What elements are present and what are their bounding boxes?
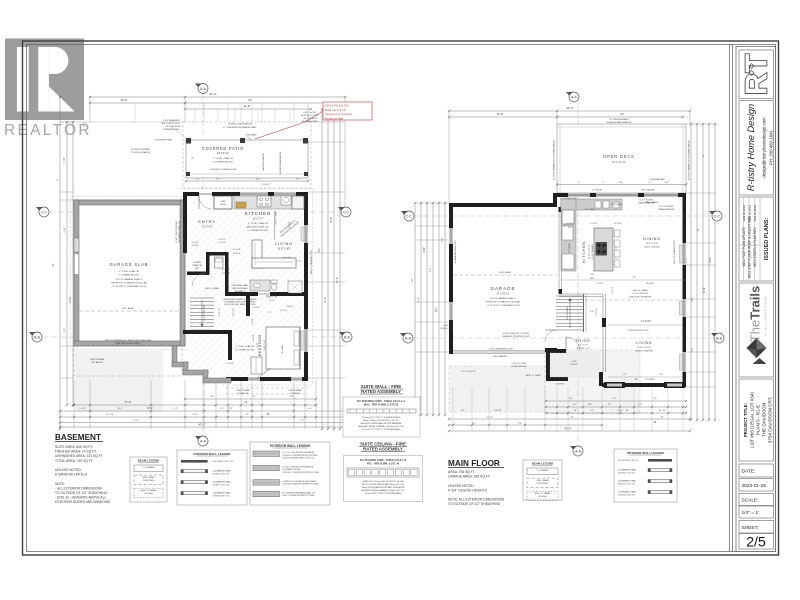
svg-text:24+ LOOKOUTS: 24+ LOOKOUTS: [461, 371, 476, 373]
svg-text:LINE OF BEAM: LINE OF BEAM: [90, 358, 104, 361]
svg-text:4-PLY EASEMENT: 4-PLY EASEMENT: [163, 119, 181, 122]
svg-text:8'-6": 8'-6": [588, 404, 593, 406]
svg-text:43'-6": 43'-6": [198, 423, 205, 427]
svg-text:4'-6": 4'-6": [430, 268, 432, 273]
svg-text:B-B: B-B: [716, 337, 722, 341]
svg-text:FRC - FRR 30 MIN. & STC 48: FRC - FRR 30 MIN. & STC 48: [367, 463, 400, 466]
svg-text:DATE:: DATE:: [742, 469, 756, 475]
svg-text:RATED ASSEMBLY: RATED ASSEMBLY: [363, 447, 403, 452]
svg-text:K.G BED: K.G BED: [282, 344, 284, 353]
svg-text:2023-01-25: 2023-01-25: [742, 483, 767, 489]
svg-text:14'-8 3/4": 14'-8 3/4": [646, 283, 654, 285]
svg-text:42'-6": 42'-6": [209, 92, 217, 96]
svg-text:5'-2": 5'-2": [196, 179, 200, 181]
svg-text:(PREMIUM WAS): (PREMIUM WAS): [512, 365, 527, 368]
svg-text:2x4 STUDS @ 16" O/C: 2x4 STUDS @ 16" O/C: [618, 460, 639, 462]
svg-text:2'-8 1/4": 2'-8 1/4": [219, 242, 226, 244]
svg-text:7'-6": 7'-6": [300, 420, 304, 422]
svg-text:7'4" X 7'2": 7'4" X 7'2": [578, 345, 588, 347]
svg-text:A-A: A-A: [571, 96, 577, 100]
svg-text:2'-6": 2'-6": [692, 348, 694, 353]
svg-text:UP 15 RISERS: UP 15 RISERS: [567, 306, 569, 320]
svg-text:4" SMOOTH FIN CLGS: 4" SMOOTH FIN CLGS: [628, 330, 650, 332]
svg-text:SUITE AREA: 600 SQ.FT.: SUITE AREA: 600 SQ.FT.: [55, 445, 93, 449]
svg-text:ENG. FL. BEAM: ENG. FL. BEAM: [275, 211, 278, 225]
svg-text:5'-0 1/4": 5'-0 1/4": [590, 223, 598, 225]
svg-text:2x4 BEARING WALL: 2x4 BEARING WALL: [213, 470, 233, 473]
svg-text:5'-2": 5'-2": [174, 408, 178, 410]
svg-text:NOTE:: NOTE:: [55, 482, 65, 486]
svg-text:W/D: W/D: [195, 268, 199, 270]
svg-text:9'-10 1/2": 9'-10 1/2": [219, 307, 221, 316]
svg-text:25': 25': [653, 421, 657, 424]
svg-text:STUDS @ 16" O/C: STUDS @ 16" O/C: [618, 484, 636, 486]
svg-text:SOLID 4 DAY DRY CLOSING: SOLID 4 DAY DRY CLOSING: [503, 332, 530, 335]
svg-text:LIVING: LIVING: [636, 341, 653, 345]
svg-text:MAIN FLOOR: MAIN FLOOR: [448, 459, 500, 468]
svg-text:- ENG. FL. HEADERS ABOVE ALL: - ENG. FL. HEADERS ABOVE ALL: [55, 496, 106, 500]
svg-text:PLAN 5 - R1-E: PLAN 5 - R1-E: [756, 405, 761, 435]
svg-text:(FLUSH): (FLUSH): [538, 496, 547, 498]
svg-text:7'-6": 7'-6": [659, 374, 663, 376]
svg-text:B-B: B-B: [344, 336, 350, 340]
svg-text:GLASS BOARD RAILING: GLASS BOARD RAILING: [606, 121, 631, 124]
svg-text:8'-6": 8'-6": [518, 423, 522, 425]
svg-text:GARAGE SLAB: GARAGE SLAB: [110, 262, 149, 267]
svg-text:16'-3": 16'-3": [147, 407, 153, 410]
svg-text:2x8 BEARING WALL: 2x8 BEARING WALL: [618, 491, 638, 494]
svg-text:PROJECT TITLE:: PROJECT TITLE:: [743, 403, 748, 437]
svg-text:TO OUTSIDE OF 1/2" SHEATHING: TO OUTSIDE OF 1/2" SHEATHING: [448, 502, 501, 506]
svg-text:4" CONC. SLAB ON: 4" CONC. SLAB ON: [213, 157, 233, 160]
svg-text:GARD. FL. BEAM: GARD. FL. BEAM: [525, 374, 541, 377]
svg-text:23': 23': [620, 112, 624, 116]
svg-text:7'-6": 7'-6": [612, 398, 617, 400]
svg-text:2/5: 2/5: [746, 534, 766, 550]
svg-text:8'-10 1/2": 8'-10 1/2": [262, 184, 270, 186]
svg-text:LINE OF FLOOR ABOVE: LINE OF FLOOR ABOVE: [629, 296, 652, 299]
svg-text:7'-6": 7'-6": [653, 398, 658, 400]
svg-text:RATED ASSEMBLY: RATED ASSEMBLY: [361, 389, 401, 394]
svg-text:LOT #65 (LEGAL LOT #34): LOT #65 (LEGAL LOT #34): [750, 392, 755, 448]
svg-text:8"x4" WDW: 8"x4" WDW: [585, 209, 595, 211]
svg-text:AND A POSITIVE LSL: AND A POSITIVE LSL: [247, 226, 269, 229]
svg-text:SHEET:: SHEET:: [742, 525, 759, 531]
svg-text:INTERIOR WALL LEGEND: INTERIOR WALL LEGEND: [627, 451, 665, 455]
svg-text:AREA: 765 SQ.FT.: AREA: 765 SQ.FT.: [448, 470, 476, 474]
svg-text:UNLESS NOTED:: UNLESS NOTED:: [448, 484, 475, 488]
svg-text:5'-1 1/2": 5'-1 1/2": [106, 414, 114, 416]
svg-text:2'-8": 2'-8": [220, 408, 224, 410]
svg-text:4" CONC. SLAB ON: 4" CONC. SLAB ON: [236, 345, 255, 348]
svg-text:6" COMPACTED FILL: 6" COMPACTED FILL: [118, 274, 140, 277]
svg-text:NO.1 PLOT PLAN UPDATE: NO.1 PLOT PLAN UPDATE: [742, 227, 746, 266]
svg-text:BUILT OUT TO 8"x8": BUILT OUT TO 8"x8": [161, 123, 180, 125]
svg-text:4" BUILD OUT: 4" BUILD OUT: [440, 328, 453, 330]
svg-text:8'-4 1/4": 8'-4 1/4": [227, 363, 234, 365]
svg-text:12'-4": 12'-4": [331, 217, 333, 223]
svg-text:REALTOR: REALTOR: [4, 122, 92, 139]
svg-text:KITCHEN: KITCHEN: [582, 241, 586, 263]
svg-text:(FLUSH): (FLUSH): [144, 493, 153, 495]
svg-text:SHOE: SHOE: [220, 204, 226, 206]
svg-text:TO OUTSIDE OF 1/2" SHEATHING: TO OUTSIDE OF 1/2" SHEATHING: [55, 491, 108, 495]
svg-text:W-10 1/2" R-7 3/4": W-10 1/2" R-7 3/4": [204, 305, 206, 321]
svg-text:2'-6": 2'-6": [210, 396, 215, 398]
svg-text:ENTRY: ENTRY: [198, 219, 215, 224]
svg-text:42" HIGH FRAMED QUICK BOARD RA: 42" HIGH FRAMED QUICK BOARD RAILING: [553, 139, 556, 180]
svg-text:LINE OF BEAM: LINE OF BEAM: [288, 389, 302, 392]
svg-text:ISSUED PLANS:: ISSUED PLANS:: [764, 218, 770, 261]
svg-text:SLOPED DRIVEWAY: SLOPED DRIVEWAY: [131, 148, 151, 151]
svg-text:FINISHED AREA: 14 SQ.FT.: FINISHED AREA: 14 SQ.FT.: [55, 450, 97, 454]
svg-text:design@rtistryhomedesign.com: design@rtistryhomedesign.com: [762, 117, 767, 178]
svg-text:®: ®: [82, 121, 87, 129]
svg-text:GARAGE: GARAGE: [491, 286, 516, 291]
svg-text:17'-6": 17'-6": [133, 420, 139, 422]
svg-text:9'-2": 9'-2": [472, 423, 476, 425]
svg-text:STUDS @ 16" O/C: STUDS @ 16" O/C: [618, 473, 636, 475]
svg-text:6.5 MIN. 26" CONCRETE (HOLD WA: 6.5 MIN. 26" CONCRETE (HOLD WALL): [282, 480, 317, 483]
svg-text:7'-11 3/4": 7'-11 3/4": [596, 308, 598, 317]
svg-text:C-C: C-C: [714, 215, 721, 219]
svg-text:8' 6 1/2" CONCRETE FOUNDATION: 8' 6 1/2" CONCRETE FOUNDATION: [282, 466, 313, 469]
svg-text:9'-10": 9'-10": [64, 227, 66, 233]
svg-text:RETAINING WALL: RETAINING WALL: [302, 120, 318, 123]
svg-text:13'-10" X 16'-5": 13'-10" X 16'-5": [589, 244, 591, 259]
svg-text:11'-6": 11'-6": [686, 257, 688, 263]
svg-text:R-tistry Home Design: R-tistry Home Design: [746, 104, 756, 191]
svg-text:STUDS @ 20" O/C: STUDS @ 20" O/C: [213, 496, 231, 498]
svg-text:42" HIGH FRAMED: 42" HIGH FRAMED: [609, 118, 629, 121]
svg-text:2' 8" LINTEL: 2' 8" LINTEL: [592, 190, 603, 192]
svg-text:(SEE SUITE WALL: (SEE SUITE WALL: [232, 287, 248, 290]
svg-text:5'-6 X 8' SLIDER: 5'-6 X 8' SLIDER: [659, 206, 674, 208]
svg-text:EXTERIOR WALL LEGEND: EXTERIOR WALL LEGEND: [270, 444, 311, 448]
svg-text:B-B: B-B: [34, 336, 40, 340]
svg-text:4'-6 1/4": 4'-6 1/4": [192, 245, 199, 247]
svg-text:ASSEMBLY): ASSEMBLY): [235, 290, 246, 293]
svg-text:(DROPPED): (DROPPED): [537, 483, 549, 485]
svg-text:5'-9 1/4": 5'-9 1/4": [222, 273, 230, 275]
svg-text:3'-2": 3'-2": [216, 179, 220, 181]
svg-text:2x6 BEARING WALL: 2x6 BEARING WALL: [213, 481, 233, 484]
svg-text:ENG. HEADER: ENG. HEADER: [641, 189, 655, 192]
svg-text:RE-ROUTED HVAC BEAMS BOOSTERS: RE-ROUTED HVAC BEAMS BOOSTERS: [224, 303, 256, 306]
svg-text:17'-4": 17'-4": [487, 417, 493, 419]
svg-text:JAN 30 2023: JAN 30 2023: [742, 204, 746, 221]
svg-text:OUT ABOVE: OUT ABOVE: [290, 392, 302, 395]
svg-text:JAN 25 2023: JAN 25 2023: [753, 204, 757, 221]
svg-text:27': 27': [410, 278, 414, 282]
svg-text:ENG. HEADER: ENG. HEADER: [493, 355, 507, 358]
svg-text:(DROPPED): (DROPPED): [143, 480, 155, 482]
svg-text:C-C: C-C: [343, 211, 350, 215]
svg-text:4'-8 1/4": 4'-8 1/4": [287, 306, 294, 308]
svg-text:42'-6": 42'-6": [566, 106, 574, 110]
svg-text:2x8 BEARING WALL: 2x8 BEARING WALL: [213, 492, 233, 495]
svg-text:C/W 2x4 FURRING WALL @ 24" O/S: C/W 2x4 FURRING WALL @ 24" O/S: [282, 457, 314, 460]
svg-text:6'-8": 6'-8": [619, 182, 623, 184]
svg-text:2x4 BEARING WALL: 2x4 BEARING WALL: [618, 469, 638, 472]
svg-text:BASEMENT: BASEMENT: [55, 433, 101, 442]
svg-text:NOTE: ALL EXTERIOR DIMENSIONS: NOTE: ALL EXTERIOR DIMENSIONS: [448, 498, 505, 502]
svg-text:8x8: 8x8: [634, 379, 637, 381]
svg-text:23' X 11'-11": 23' X 11'-11": [612, 161, 626, 164]
svg-text:9' THERMAL WALL: 9' THERMAL WALL: [649, 178, 665, 181]
svg-text:12.7mm (1/2") TYPE "X" GYPSUM: 12.7mm (1/2") TYPE "X" GYPSUM BOARD: [362, 428, 401, 431]
svg-text:THE DAVIDSON: THE DAVIDSON: [762, 403, 767, 437]
svg-text:BEAM LEGEND: BEAM LEGEND: [138, 459, 159, 463]
svg-text:UNFINISHED AREA: 131 SQ.FT.: UNFINISHED AREA: 131 SQ.FT.: [55, 454, 103, 458]
svg-text:23': 23': [248, 98, 252, 102]
svg-text:8" CONCRETE RETAINING WALL: 8" CONCRETE RETAINING WALL: [223, 126, 257, 129]
svg-text:1 1/2": 1 1/2": [192, 414, 197, 416]
svg-text:2x6 BEARING WALL (TYP.): 2x6 BEARING WALL (TYP.): [454, 240, 457, 264]
svg-text:COAT/: COAT/: [220, 200, 226, 203]
svg-text:WALL HEADED: WALL HEADED: [645, 201, 659, 204]
svg-text:18' 8-3/4" CLG: 18' 8-3/4" CLG: [576, 348, 590, 350]
svg-text:4" CONC. SLAB ON: 4" CONC. SLAB ON: [119, 270, 139, 273]
svg-text:ON CONCRETE: ON CONCRETE: [165, 126, 180, 128]
svg-text:4'-6": 4'-6": [296, 179, 300, 181]
svg-text:2 x LUMBER: 2 x LUMBER: [536, 470, 549, 472]
svg-text:12': 12': [244, 400, 248, 404]
svg-text:37'-8" LINTEL: 37'-8" LINTEL: [611, 204, 623, 206]
svg-text:8" CONCRETE RETAINING WALL ON: 8" CONCRETE RETAINING WALL ON: [282, 491, 315, 494]
svg-text:NO.3 STAIRS & PLAN REV.: NO.3 STAIRS & PLAN REV.: [753, 227, 757, 267]
svg-text:WEATHER STRIPPED DOOR: WEATHER STRIPPED DOOR: [503, 335, 531, 338]
svg-text:4-PLY 2x6 PSL*: 4-PLY 2x6 PSL*: [303, 112, 317, 114]
svg-text:ON 19"x8" CONCRETE STRIP FOOTI: ON 19"x8" CONCRETE STRIP FOOTING: [282, 455, 318, 457]
svg-text:2'-8 1/4": 2'-8 1/4": [253, 307, 260, 309]
svg-text:FROM TOP OF MAIN FLOOR SLAB: FROM TOP OF MAIN FLOOR SLAB: [111, 282, 147, 285]
svg-text:ENG.: ENG.: [444, 325, 449, 327]
svg-text:C-C: C-C: [41, 211, 48, 215]
svg-text:ENG. FL. BEAM: ENG. FL. BEAM: [633, 289, 648, 292]
svg-text:21'-8": 21'-8": [244, 104, 251, 108]
svg-text:4'-1": 4'-1": [573, 404, 577, 406]
svg-text:10'-1": 10'-1": [117, 408, 122, 410]
svg-text:13'-6": 13'-6": [423, 247, 426, 253]
svg-text:6'-8 1/4": 6'-8 1/4": [253, 334, 255, 341]
svg-text:4'-6": 4'-6": [568, 227, 572, 229]
svg-text:TOP OF GARAGE SLAB -3": TOP OF GARAGE SLAB -3": [115, 278, 143, 281]
svg-text:3'-0 1/4": 3'-0 1/4": [252, 318, 254, 325]
svg-text:STUDS @ 16" O/C: STUDS @ 16" O/C: [213, 485, 231, 487]
svg-text:16"x8" CONC FOOTING: 16"x8" CONC FOOTING: [176, 221, 178, 243]
svg-text:WSC - FRR 45 MIN. & STC 43: WSC - FRR 45 MIN. & STC 43: [364, 404, 399, 407]
svg-text:8" x 3'-0" CONCRETE FOUNDATION: 8" x 3'-0" CONCRETE FOUNDATION: [282, 451, 314, 454]
svg-text:14'-2": 14'-2": [255, 179, 260, 181]
svg-text:ENG. FL. HEADER (TYP.): ENG. FL. HEADER (TYP.): [310, 250, 313, 275]
svg-text:2'-2": 2'-2": [590, 410, 594, 412]
svg-text:FOYER: FOYER: [576, 339, 591, 343]
svg-text:KITCHEN: KITCHEN: [245, 211, 271, 216]
svg-text:17'-6": 17'-6": [125, 400, 132, 404]
svg-text:ON 8"x16" CONCRETE (STRIP FOOT: ON 8"x16" CONCRETE (STRIP FOOTING): [282, 472, 319, 474]
svg-text:2'-1": 2'-1": [268, 312, 272, 314]
svg-text:'14'-8 3/4": '14'-8 3/4": [641, 320, 652, 323]
svg-text:19'-6": 19'-6": [120, 98, 127, 102]
svg-text:4'-1": 4'-1": [569, 398, 574, 400]
svg-text:Retaining Wall: Retaining Wall: [325, 116, 343, 120]
svg-text:CRAWL IN: CRAWL IN: [192, 264, 202, 267]
svg-text:4'-4": 4'-4": [461, 410, 465, 412]
svg-text:5'-8 1/4": 5'-8 1/4": [233, 253, 241, 255]
svg-text:RT: RT: [739, 54, 774, 95]
svg-text:RESILIENT METAL CHANNEL @ 600m: RESILIENT METAL CHANNEL @ 600mm (16" O/C…: [358, 425, 404, 428]
svg-text:FIRE RATED WALL: FIRE RATED WALL: [232, 284, 249, 287]
svg-text:ENG. BEAM: ENG. BEAM: [537, 479, 549, 482]
svg-text:+2" SLOPE TO OVERHEAD DOOR: +2" SLOPE TO OVERHEAD DOOR: [112, 285, 147, 288]
svg-text:- ALL EXTERIOR DIMENSIONS: - ALL EXTERIOR DIMENSIONS: [55, 486, 103, 490]
svg-text:7'-6": 7'-6": [63, 157, 66, 162]
svg-text:89mm(R12) WHITE ABSORPTIVE MAT: 89mm(R12) WHITE ABSORPTIVE MATERIAL: [360, 422, 402, 425]
svg-text:SUBFLOOR: 15.5mm (5/8") PLYWOO: SUBFLOOR: 15.5mm (5/8") PLYWOOD OR OSB: [362, 481, 404, 483]
svg-text:FROM TOP OF MAIN FLOOR SLAB: FROM TOP OF MAIN FLOOR SLAB: [486, 301, 520, 304]
svg-text:5'-6 3/4": 5'-6 3/4": [289, 221, 291, 228]
svg-text:ENG. BEAM: ENG. BEAM: [499, 271, 510, 274]
svg-text:4" COMPACTED FILL: 4" COMPACTED FILL: [235, 349, 255, 352]
svg-text:1/4" = 1': 1/4" = 1': [742, 510, 760, 516]
svg-text:TRANSOM ABOVE: TRANSOM ABOVE: [658, 208, 675, 211]
svg-text:OUT ABOVE: OUT ABOVE: [91, 361, 103, 364]
svg-text:CONCRETE STAIR: CONCRETE STAIR: [154, 139, 172, 142]
svg-text:A-A: A-A: [200, 87, 206, 91]
svg-text:12.7mm (1/2") TYPE "X" GYPSUM: 12.7mm (1/2") TYPE "X" GYPSUM BOARD: [362, 416, 401, 419]
svg-text:STUDS @ 16" O/C: STUDS @ 16" O/C: [213, 474, 231, 476]
svg-text:8'-1 1/4": 8'-1 1/4": [233, 249, 241, 251]
svg-text:7'-6": 7'-6": [290, 396, 295, 398]
svg-text:ENG. FL. BEAM: ENG. FL. BEAM: [535, 492, 550, 495]
svg-text:27': 27': [51, 263, 55, 267]
svg-text:38mm x 89mm (2x4) STUDS @ 16": 38mm x 89mm (2x4) STUDS @ 16" O/C: [363, 420, 399, 422]
svg-text:ON 8"x16" CONCRETE (STRIP FOOT: ON 8"x16" CONCRETE (STRIP FOOTING): [282, 484, 319, 486]
svg-text:4'-6": 4'-6": [590, 274, 594, 276]
svg-text:(9'-3/4" CEILING): (9'-3/4" CEILING): [644, 247, 660, 249]
svg-text:NO.2 STEP FLOOR ROOF & HEIGHT: NO.2 STEP FLOOR ROOF & HEIGHT REV.: [748, 215, 752, 278]
svg-text:ENG. FL. BEAM: ENG. FL. BEAM: [141, 489, 156, 492]
svg-text:STUDS @ 20" O/C: STUDS @ 20" O/C: [618, 495, 636, 497]
svg-text:RETAINING WALL: RETAINING WALL: [163, 128, 181, 131]
svg-text:5'-8 1/4": 5'-8 1/4": [494, 410, 502, 412]
svg-text:9'-3/4" CEILING HEIGHTS: 9'-3/4" CEILING HEIGHTS: [448, 488, 488, 492]
svg-text:2x6 BEARING WALL ON: 2x6 BEARING WALL ON: [178, 220, 181, 243]
svg-text:(9' CLG" CEILING): (9' CLG" CEILING): [632, 293, 649, 295]
svg-text:7'-6": 7'-6": [623, 374, 627, 376]
svg-text:4" COMPACTED FILL: 4" COMPACTED FILL: [247, 229, 269, 232]
svg-text:3754 DAVIDSON CRT.: 3754 DAVIDSON CRT.: [768, 397, 773, 444]
svg-text:7'2" X 5'4": 7'2" X 5'4": [202, 226, 213, 229]
svg-text:BEAM LEGEND: BEAM LEGEND: [532, 462, 553, 466]
svg-text:(OPEN TO ABOVE): (OPEN TO ABOVE): [635, 350, 653, 353]
svg-text:DROP FOUNDATION & CANTILEVER S: DROP FOUNDATION & CANTILEVER SLAB OVER: [105, 339, 152, 342]
svg-text:(9'-3/4" ISLAND): (9'-3/4" ISLAND): [591, 244, 594, 259]
svg-text:ENG DECK BEAM ABOVE: ENG DECK BEAM ABOVE: [279, 151, 282, 174]
svg-text:GARAGE AREA: 326 SQ.FT.: GARAGE AREA: 326 SQ.FT.: [448, 475, 490, 479]
svg-text:BATH: BATH: [266, 295, 277, 299]
svg-text:+2" SLOPE TO OVERHEAD DOOR: +2" SLOPE TO OVERHEAD DOOR: [486, 304, 520, 307]
svg-text:8'-2": 8'-2": [319, 248, 321, 253]
svg-text:1'-1 1/2": 1'-1 1/2": [78, 408, 86, 410]
svg-text:25': 25': [266, 412, 270, 416]
svg-text:DINING: DINING: [643, 237, 661, 241]
svg-text:TOP OF GARAGE SLAB -3": TOP OF GARAGE SLAB -3": [490, 297, 516, 300]
svg-text:11'-8 1/4": 11'-8 1/4": [614, 223, 623, 225]
svg-text:A-A: A-A: [200, 440, 206, 444]
svg-text:9'-10": 9'-10": [257, 342, 259, 347]
svg-text:OUT ABOVE: OUT ABOVE: [238, 392, 250, 395]
svg-text:6'-2": 6'-2": [64, 328, 66, 333]
svg-text:C-C: C-C: [406, 215, 413, 219]
svg-text:8' X 5': 8' X 5': [269, 300, 275, 302]
svg-text:47'-6": 47'-6": [704, 287, 706, 293]
svg-text:EXTERIOR DOORS AND WINDOWS: EXTERIOR DOORS AND WINDOWS: [55, 500, 111, 504]
svg-text:2'-6": 2'-6": [436, 308, 438, 313]
svg-text:16'x8' OVERHEAD DOOR: 16'x8' OVERHEAD DOOR: [489, 348, 513, 351]
svg-text:15'11" X 15'6": 15'11" X 15'6": [637, 347, 651, 349]
svg-text:8'-2 1/4": 8'-2 1/4": [281, 310, 288, 312]
svg-text:OPEN DECK: OPEN DECK: [603, 154, 635, 159]
svg-text:6'-3 1/4": 6'-3 1/4": [219, 239, 226, 241]
svg-text:8'-1 1/4": 8'-1 1/4": [222, 269, 230, 271]
svg-text:15.9mm (5/8") TYPE "X" GYPSUM: 15.9mm (5/8") TYPE "X" GYPSUM BOARD: [365, 492, 402, 495]
svg-text:UNLESS NOTED:: UNLESS NOTED:: [55, 468, 82, 472]
svg-text:6'-6": 6'-6": [665, 182, 669, 184]
svg-text:4" CONC. SLAB ON: 4" CONC. SLAB ON: [248, 222, 268, 225]
svg-text:8"x16" CONCRETE STRIP FOOTING: 8"x16" CONCRETE STRIP FOOTING: [282, 495, 314, 497]
svg-text:TheTrails: TheTrails: [748, 286, 763, 342]
svg-text:8'-0 1/4": 8'-0 1/4": [612, 286, 614, 294]
svg-text:2 x LUMBER: 2 x LUMBER: [142, 467, 155, 469]
svg-text:89mm (R12(R)) ABSORPTIVE BATT: 89mm (R12(R)) ABSORPTIVE BATT INSULATION: [362, 486, 405, 489]
svg-text:2F DECK CANT. ABOVE: 2F DECK CANT. ABOVE: [228, 123, 253, 126]
svg-text:1'3/4": 1'3/4": [590, 278, 595, 280]
svg-text:INTERIOR WALL LEGEND: INTERIOR WALL LEGEND: [194, 452, 232, 456]
svg-text:19'-6": 19'-6": [496, 112, 503, 116]
svg-text:RESILIENT METAL CHANNEL @ 400m: RESILIENT METAL CHANNEL @ 400mm (16" O/C…: [361, 489, 405, 492]
svg-text:SCALE:: SCALE:: [742, 498, 759, 504]
svg-text:TOTAL AREA: 740 SQ.FT.: TOTAL AREA: 740 SQ.FT.: [55, 459, 93, 463]
svg-text:8'-3 1/4": 8'-3 1/4": [597, 283, 604, 285]
svg-text:23' X 8'-11": 23' X 8'-11": [217, 152, 229, 155]
svg-text:PH: 250 469-1641: PH: 250 469-1641: [769, 129, 774, 164]
svg-text:2x6 BEARING WALL: 2x6 BEARING WALL: [618, 480, 638, 483]
svg-text:LINE OF LOWER: LINE OF LOWER: [512, 363, 527, 365]
svg-text:(CORNERS ON S/S): (CORNERS ON S/S): [282, 469, 300, 471]
svg-text:4'-0 1/4": 4'-0 1/4": [192, 242, 199, 244]
svg-text:42" HIGH FRAMED QUICK BOARD RA: 42" HIGH FRAMED QUICK BOARD RAILING: [688, 139, 691, 180]
svg-text:ENG. FL. BEAM: ENG. FL. BEAM: [205, 287, 219, 290]
svg-text:34'-6": 34'-6": [710, 257, 712, 263]
svg-text:8' WINDOW LINTELS: 8' WINDOW LINTELS: [55, 473, 88, 477]
svg-text:B-B: B-B: [405, 337, 411, 341]
svg-text:CHOOSE 9' STAGE DOOR: CHOOSE 9' STAGE DOOR: [210, 168, 237, 171]
svg-text:7'-4": 7'-4": [692, 298, 694, 303]
svg-text:COVD: COVD: [571, 361, 577, 363]
svg-text:4'-6": 4'-6": [308, 408, 312, 410]
svg-text:OPENED: OPENED: [193, 262, 202, 264]
svg-text:ENG. BEAM: ENG. BEAM: [143, 476, 155, 479]
svg-text:13'2" X 11'6": 13'2" X 11'6": [646, 243, 658, 245]
svg-text:GATE DECK ABOVE: GATE DECK ABOVE: [262, 152, 265, 170]
svg-text:13'11" X 8'9": 13'11" X 8'9": [277, 248, 290, 251]
svg-text:PORCH: PORCH: [570, 364, 578, 366]
svg-text:A-A: A-A: [575, 450, 581, 454]
svg-text:COVERED PATIO: COVERED PATIO: [202, 146, 244, 151]
svg-text:TO SUITE (GRADED): TO SUITE (GRADED): [130, 151, 150, 154]
